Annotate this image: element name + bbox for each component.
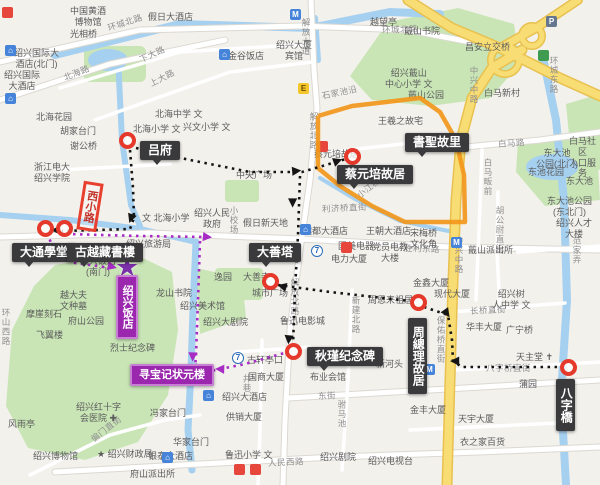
walking-route-black <box>278 285 410 301</box>
landmark-label[interactable]: 寻宝记状元楼 <box>130 364 214 386</box>
poi-marker[interactable] <box>344 148 361 165</box>
landmark-label[interactable]: 大善塔 <box>249 243 301 262</box>
poi-marker[interactable] <box>119 132 136 149</box>
poi-marker[interactable] <box>285 343 302 360</box>
poi-marker[interactable] <box>262 273 279 290</box>
poi-marker[interactable] <box>410 294 427 311</box>
poi-marker[interactable] <box>560 359 577 376</box>
route-arrow-icon: ▶ <box>215 364 225 376</box>
poi-marker[interactable] <box>37 220 54 237</box>
landmark-label[interactable]: 古越藏書樓 <box>67 243 143 262</box>
landmark-label[interactable]: 書聖故里 <box>405 133 469 152</box>
landmark-label[interactable]: 吕府 <box>140 141 180 160</box>
walking-route-purple <box>195 241 200 368</box>
landmark-label[interactable]: 周總理故居 <box>408 318 427 394</box>
route-arrow-icon: ▶ <box>202 230 212 243</box>
route-arrow-icon: ▶ <box>450 356 459 368</box>
landmark-label[interactable]: 蔡元培故居 <box>337 165 413 184</box>
landmark-label[interactable]: 八字橋 <box>556 379 575 431</box>
landmark-label[interactable]: 秋瑾纪念碑 <box>307 347 383 366</box>
landmark-label[interactable]: 绍兴饭店 <box>116 275 138 339</box>
poi-marker[interactable] <box>56 220 73 237</box>
map-canvas[interactable]: 环城北路环城北路北海路下大路上大路解放大道解放北路解放北路中兴中路中兴中路环城东… <box>0 0 600 485</box>
walking-route-purple <box>66 234 206 237</box>
route-arrow-icon: ▶ <box>288 198 300 207</box>
route-arrow-icon: ▶ <box>291 164 301 177</box>
